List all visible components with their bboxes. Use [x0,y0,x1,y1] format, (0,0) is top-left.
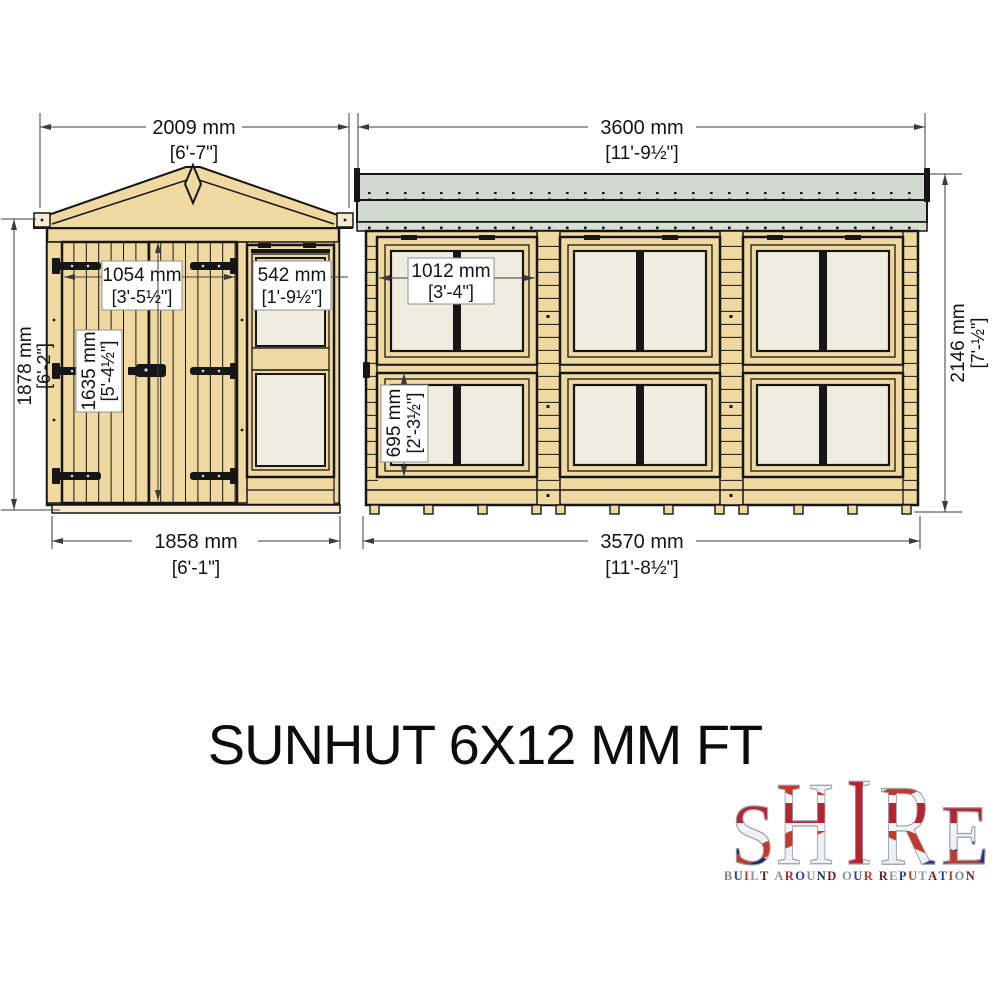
dim-front-base: 1858 mm [6'-1"] [52,516,340,579]
tagline-letter: O [955,869,966,884]
tagline-letter: O [795,869,806,884]
dim-front-window-width-ft: [1'-9½"] [262,287,323,307]
dim-side-window-height-mm: 695 mm [384,389,405,458]
tagline-letter: N [817,869,827,884]
tagline-letter: U [853,869,863,884]
dim-door-height-mm: 1635 mm [79,331,100,410]
side-roof [354,168,930,231]
tagline-letter: L [750,869,760,884]
dim-door-width-ft: [3'-5½"] [112,287,173,307]
dim-side-height-mm: 2146 mm [948,303,969,382]
front-floor [52,505,340,513]
side-window-bay [560,235,720,477]
tagline-letter: R [785,869,795,884]
side-bearers [370,505,911,514]
tagline-letter: E [889,869,899,884]
tagline-letter: R [879,869,889,884]
tagline-letter: N [966,869,976,884]
dim-side-height-ft: [7'-½"] [968,318,988,369]
technical-drawing: 2009 mm [6'-7"] 1878 mm [6'-2"] 1054 mm … [0,0,1000,640]
side-door-knob-icon [363,362,370,378]
dim-side-window-height-ft: [2'-3½"] [404,393,424,454]
dim-front-width-mm: 2009 mm [152,117,235,139]
tagline-letter: A [774,869,784,884]
front-roof [34,165,353,228]
tagline-letter: T [760,869,770,884]
tagline-letter: D [827,869,837,884]
dim-side-window-width-ft: [3'-4"] [428,282,474,302]
tagline-letter: O [842,869,853,884]
dim-side-base: 3570 mm [11'-8½"] [363,516,920,579]
tagline-letter: T [918,869,928,884]
tagline-letter: B [724,869,734,884]
logo-tagline: BUILT AROUND OUR REPUTATION [700,869,1000,884]
dim-front-window-width-mm: 542 mm [258,265,327,286]
tagline-letter: T [939,869,949,884]
dim-side-width-mm: 3600 mm [600,117,683,139]
tagline-letter: A [928,869,938,884]
dim-side-window-height: 695 mm [2'-3½"] [381,373,428,477]
side-window-bay [743,235,903,477]
tagline-letter: U [734,869,744,884]
dim-side-width-ft: [11'-9½"] [605,143,678,164]
tagline-letter: P [899,869,908,884]
dim-side-width: 3600 mm [11'-9½"] [358,113,925,170]
dim-door-height-ft: [5'-4½"] [98,341,118,402]
tagline-letter: U [806,869,816,884]
dim-front-base-ft: [6'-1"] [172,558,220,579]
tagline-letter: R [864,869,874,884]
page: 2009 mm [6'-7"] 1878 mm [6'-2"] 1054 mm … [0,0,1000,1000]
front-window-lower-pane [256,374,325,466]
dim-front-height-mm: 1878 mm [15,326,36,405]
side-elevation [354,168,930,514]
dim-door-width-mm: 1054 mm [102,265,181,286]
dim-front-height-ft: [6'-2"] [34,343,54,389]
dim-side-base-mm: 3570 mm [600,531,683,553]
dim-front-width-ft: [6'-7"] [170,143,218,164]
dim-side-window-width-mm: 1012 mm [411,261,490,282]
tagline-letter: U [908,869,918,884]
dim-side-base-ft: [11'-8½"] [605,558,678,579]
dim-front-base-mm: 1858 mm [154,531,237,553]
